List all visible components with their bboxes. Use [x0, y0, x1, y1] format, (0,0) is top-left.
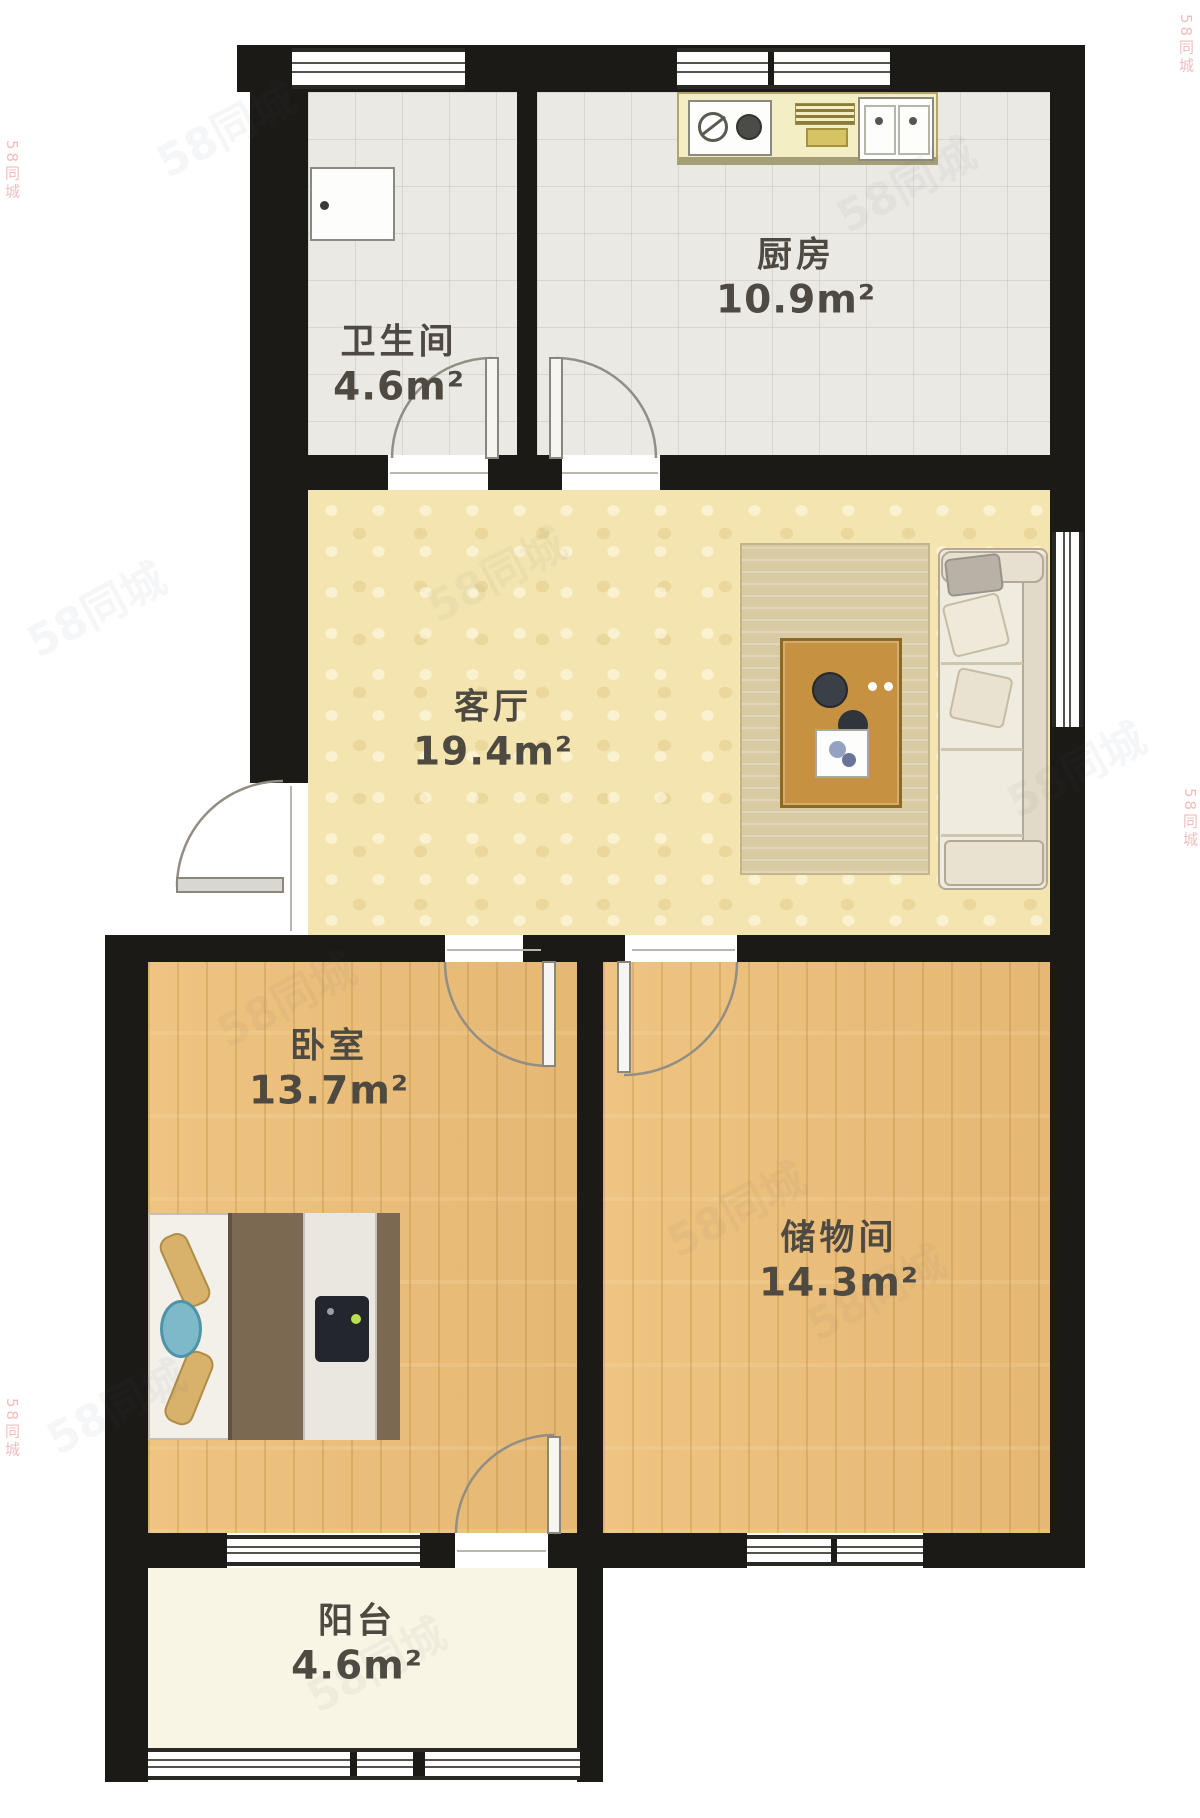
- sofa-pillow-icon: [948, 667, 1014, 730]
- laptop-light-icon: [351, 1314, 361, 1324]
- sofa-pillow-icon: [944, 553, 1004, 598]
- room-name: 厨房: [757, 239, 835, 274]
- window-mullion: [831, 1539, 837, 1562]
- sofa-backrest: [1022, 554, 1046, 884]
- wall-bedroom-bottom-a: [105, 1533, 227, 1568]
- laptop-icon: [315, 1296, 369, 1362]
- watermark-red: 58同城: [1180, 788, 1200, 849]
- room-area: 13.7m²: [249, 1072, 409, 1111]
- storage-window: [747, 1535, 923, 1566]
- room-area: 10.9m²: [716, 281, 876, 320]
- basin-drain-icon: [320, 201, 329, 210]
- sofa-chaise: [944, 840, 1044, 886]
- sofa-cushion-line: [941, 748, 1023, 751]
- sink-drain-left: [875, 117, 883, 125]
- wall-bedroom-top-b: [523, 935, 625, 962]
- stove-vent-icon: [795, 103, 855, 125]
- wall-bedroom-top-c: [737, 935, 1085, 962]
- balcony-railing-window: [148, 1748, 580, 1780]
- wall-bedroom-bottom-c: [548, 1533, 603, 1568]
- entry-door-arc: [177, 781, 283, 887]
- burner-icon: [736, 114, 762, 140]
- wall-right: [1050, 45, 1085, 1568]
- room-area: 14.3m²: [759, 1264, 919, 1303]
- wall-bedroom-bottom-b: [420, 1533, 455, 1568]
- bedroom-window: [227, 1535, 420, 1566]
- sink-drain-right: [909, 117, 917, 125]
- washbasin-icon: [310, 167, 395, 241]
- room-label-balcony: 阳台 4.6m²: [291, 1605, 423, 1686]
- room-label-storage: 储物间 14.3m²: [759, 1222, 919, 1303]
- sink-basin-left: [864, 105, 896, 155]
- watermark: 58同城: [14, 544, 176, 671]
- washing-machine-icon: [688, 100, 772, 156]
- window-post: [413, 1752, 425, 1776]
- living-room-window: [1052, 532, 1083, 727]
- room-label-living: 客厅 19.4m²: [413, 691, 573, 772]
- wall-storage-bottom-b: [923, 1533, 1085, 1568]
- room-name: 阳台: [318, 1605, 396, 1640]
- room-name: 卫生间: [340, 326, 457, 361]
- watermark-red: 58同城: [2, 140, 23, 201]
- table-dot-icon: [868, 682, 877, 691]
- window-mullion: [350, 1752, 357, 1776]
- table-decor-bowl-icon: [812, 672, 848, 708]
- room-label-kitchen: 厨房 10.9m²: [716, 239, 876, 320]
- wall-left-upper: [250, 45, 308, 783]
- room-area: 4.6m²: [333, 368, 465, 407]
- kitchen-sink-icon: [858, 97, 934, 161]
- kitchen-window: [677, 48, 890, 89]
- room-area: 4.6m²: [291, 1647, 423, 1686]
- table-tray-icon: [815, 729, 869, 778]
- wall-bedroom-top-a: [105, 935, 445, 962]
- floor-plan: 卫生间 4.6m² 厨房 10.9m² 客厅 19.4m² 卧室 13.7m² …: [0, 0, 1200, 1818]
- room-label-bedroom: 卧室 13.7m²: [249, 1030, 409, 1111]
- wall-mid-c: [660, 455, 1050, 490]
- bed-cushion-icon: [160, 1300, 202, 1358]
- sink-basin-right: [898, 105, 930, 155]
- watermark-red: 58同城: [2, 1398, 23, 1459]
- laptop-key-icon: [327, 1308, 334, 1315]
- room-area: 19.4m²: [413, 733, 573, 772]
- room-name: 储物间: [780, 1222, 897, 1257]
- bathroom-window: [292, 48, 465, 89]
- stove-icon: [806, 128, 848, 147]
- window-mullion: [768, 52, 774, 85]
- wall-mid-a: [308, 455, 388, 490]
- sofa-cushion-line: [941, 834, 1023, 837]
- entry-door-leaf: [177, 878, 283, 892]
- sofa-cushion-line: [941, 662, 1023, 665]
- wall-storage-bottom-a: [603, 1533, 747, 1568]
- room-name: 客厅: [454, 691, 532, 726]
- room-label-bathroom: 卫生间 4.6m²: [333, 326, 465, 407]
- wall-left-lower: [105, 935, 148, 1782]
- room-name: 卧室: [290, 1030, 368, 1065]
- watermark-red: 58同城: [1176, 14, 1197, 75]
- table-dot2-icon: [884, 682, 893, 691]
- wall-divider-bed-storage: [577, 962, 603, 1782]
- wall-divider-bath-kitchen: [517, 92, 537, 470]
- flower-icon-2: [842, 753, 856, 767]
